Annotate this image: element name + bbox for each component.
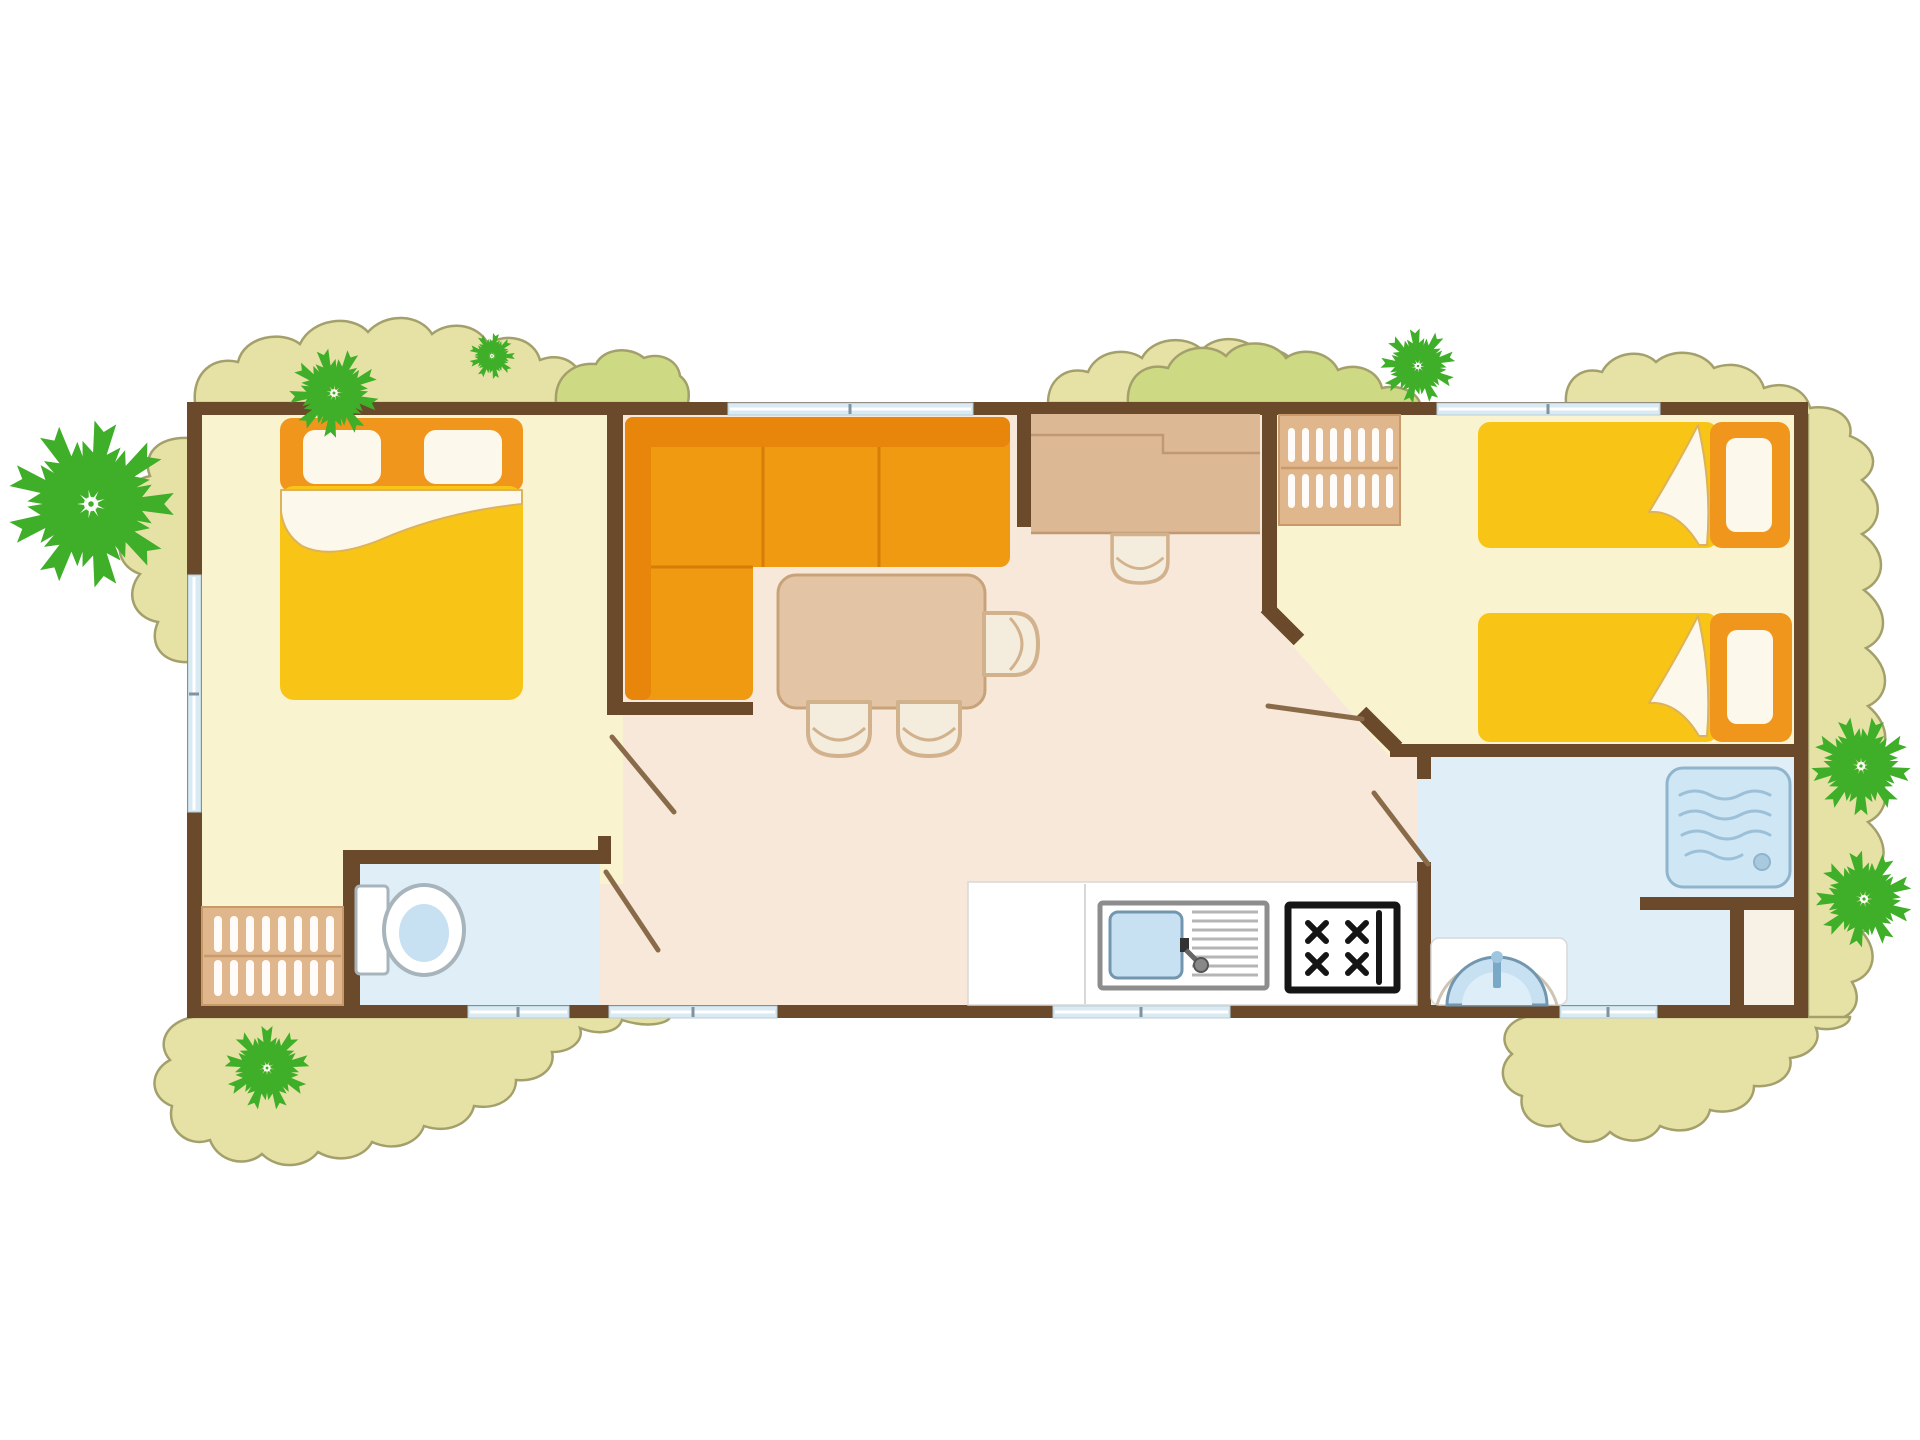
shower-drain [1754, 854, 1770, 870]
single-bed-bottom [1478, 613, 1792, 742]
desk-unit [1031, 414, 1260, 533]
window-bottom-kitchen [1053, 1006, 1230, 1018]
pillow [1726, 438, 1772, 532]
wall-wc-door-post [598, 836, 611, 864]
wall-bedroom-bathroom [1390, 744, 1794, 757]
wall-wc-top [343, 850, 600, 864]
window-top-living [728, 403, 973, 415]
window-left-bedroom [188, 575, 201, 812]
wall-hall-bath-top [1417, 757, 1431, 779]
toilet-bowl-water [399, 904, 449, 962]
double-bed [280, 418, 523, 700]
storage-niche-floor [1744, 910, 1794, 1005]
dining-table [778, 575, 985, 708]
wall-bedroom-living [607, 415, 623, 715]
hanging-closet [1279, 415, 1400, 525]
shower-tray [1667, 768, 1790, 887]
wall-desk-alcove [1017, 415, 1031, 527]
bush-top-left-green [556, 350, 689, 403]
dining-chair [984, 613, 1038, 675]
wall-hall-bath-bottom [1417, 862, 1431, 1005]
bush-bottom-right [1503, 1017, 1850, 1142]
window-bottom-wc [468, 1006, 569, 1018]
dining-chair [898, 702, 960, 756]
toilet [356, 885, 464, 975]
pillow [424, 430, 502, 484]
desk-stool [1112, 534, 1168, 583]
gas-hob [1288, 905, 1397, 990]
dining-chair [808, 702, 870, 756]
pillow [303, 430, 381, 484]
pillow [1727, 630, 1773, 724]
kitchen-sink [1100, 903, 1267, 988]
washbasin [1431, 938, 1567, 1005]
wardrobe [202, 907, 343, 1005]
window-bottom-hall [609, 1006, 777, 1018]
window-top-twin-bedroom [1437, 403, 1660, 415]
window-bottom-bathroom [1560, 1006, 1657, 1018]
wall-under-sofa [607, 702, 753, 715]
single-bed-top [1478, 422, 1790, 548]
bush-top-left [195, 318, 596, 403]
sink-basin [1110, 912, 1182, 978]
bush-bottom-left [154, 1017, 670, 1165]
floor-plan [0, 0, 1920, 1440]
page [0, 0, 1920, 1440]
wall-twin-bedroom [1262, 415, 1277, 613]
wall-bath-niche-h [1640, 897, 1794, 910]
wall-bath-niche-v [1730, 910, 1744, 1005]
